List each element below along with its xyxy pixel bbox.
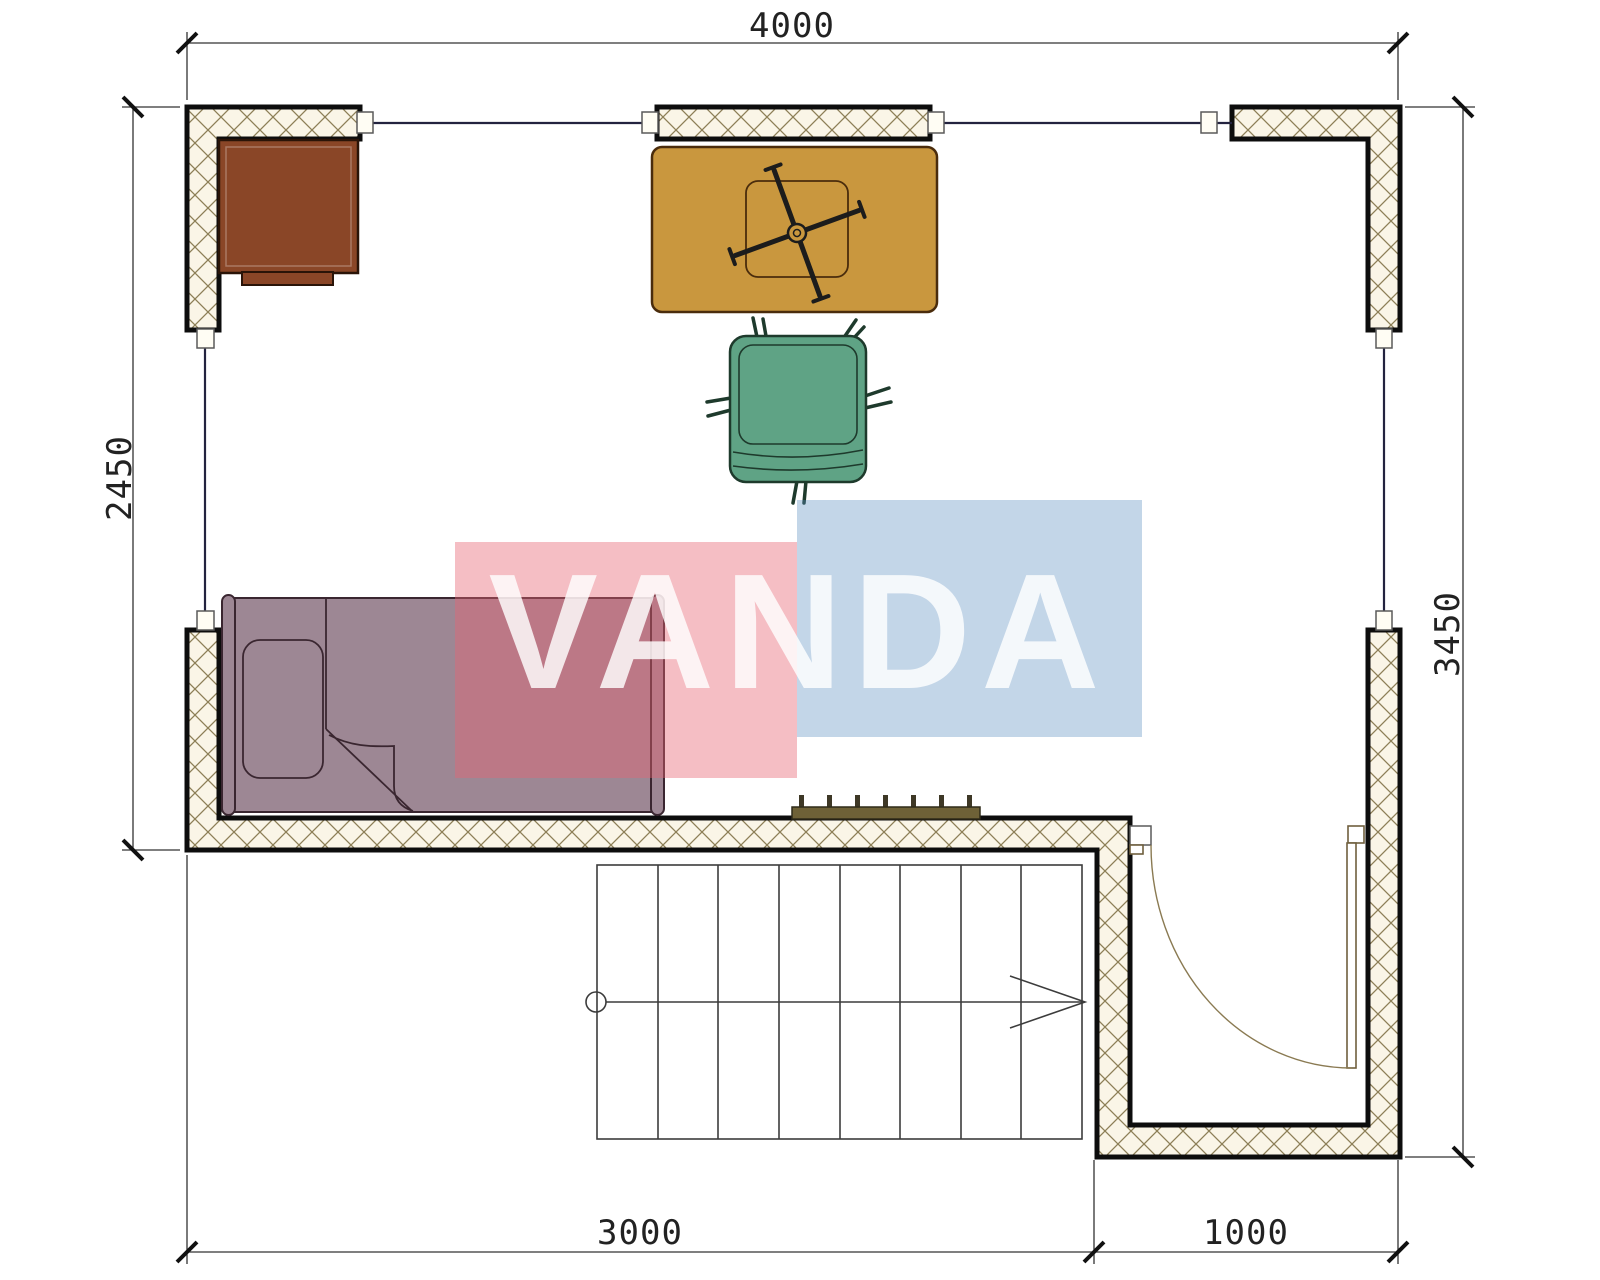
door-jamb-step: [1130, 845, 1143, 854]
window-jamb-icon: [197, 329, 214, 348]
desk: [219, 140, 358, 285]
window-jamb-icon: [928, 112, 944, 133]
door-hinge-block: [1348, 826, 1364, 843]
wall-top-right: [1232, 107, 1400, 330]
wall-top-center: [657, 107, 930, 139]
floor-plan-drawing: 4000 2450 3450 3000 1000 VANDA: [0, 0, 1600, 1280]
dim-label-top: 4000: [749, 6, 835, 46]
dimension-left: 2450: [100, 97, 180, 860]
dimension-bottom: 3000 1000: [177, 855, 1408, 1264]
radiator: [792, 795, 980, 819]
door-swing-arc: [1151, 845, 1352, 1068]
dim-label-bottom-right: 1000: [1203, 1213, 1289, 1253]
dimension-top: 4000: [177, 6, 1408, 100]
floor-plan-page: 4000 2450 3450 3000 1000 VANDA: [0, 0, 1600, 1280]
window-jamb-icon: [1376, 611, 1392, 630]
stairs-start-circle: [586, 992, 606, 1012]
watermark: VANDA: [455, 500, 1142, 778]
stairs: [586, 865, 1085, 1139]
watermark-text: VANDA: [489, 540, 1110, 723]
dim-label-right: 3450: [1428, 591, 1468, 677]
window-jamb-icon: [197, 611, 214, 630]
entry-door: [1130, 826, 1364, 1068]
door-leaf: [1347, 843, 1356, 1068]
window-jamb-icon: [1201, 112, 1217, 133]
window-jamb-icon: [1376, 329, 1392, 348]
dim-label-left: 2450: [100, 435, 140, 521]
office-table: [652, 144, 937, 323]
window-jamb-icon: [642, 112, 658, 133]
door-jamb: [1130, 826, 1151, 845]
armchair: [707, 318, 891, 503]
dim-label-bottom-left: 3000: [597, 1213, 683, 1253]
dimension-right: 3450: [1405, 97, 1475, 1167]
window-jamb-icon: [357, 112, 373, 133]
